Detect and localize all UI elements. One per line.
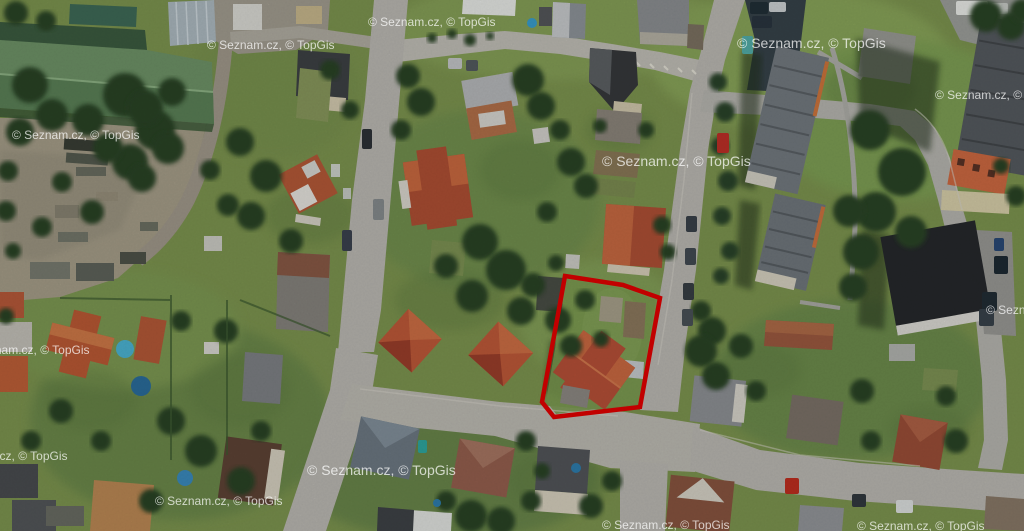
svg-text:© Seznam.cz, © TopGis: © Seznam.cz, © TopGis (602, 518, 730, 531)
svg-text:© Seznam.cz, © TopGis: © Seznam.cz, © TopGis (857, 519, 985, 531)
svg-text:© Seznam.cz, © TopGis: © Seznam.cz, © TopGis (0, 449, 68, 463)
svg-text:© Seznam.cz, © TopGis: © Seznam.cz, © TopGis (935, 88, 1024, 102)
svg-text:© Seznam.cz, © TopGis: © Seznam.cz, © TopGis (307, 462, 456, 478)
svg-text:© Seznam.cz, © TopGis: © Seznam.cz, © TopGis (207, 38, 335, 52)
svg-text:© Seznam.cz, © TopGis: © Seznam.cz, © TopGis (0, 343, 90, 357)
svg-text:© Seznam.cz, © TopGis: © Seznam.cz, © TopGis (737, 35, 886, 51)
svg-text:© Seznam.cz, © TopGis: © Seznam.cz, © TopGis (602, 153, 751, 169)
svg-text:© Seznam.cz: © Seznam.cz (986, 303, 1024, 317)
svg-text:© Seznam.cz, © TopGis: © Seznam.cz, © TopGis (368, 15, 496, 29)
svg-text:© Seznam.cz, © TopGis: © Seznam.cz, © TopGis (155, 494, 283, 508)
svg-text:© Seznam.cz, © TopGis: © Seznam.cz, © TopGis (12, 128, 140, 142)
